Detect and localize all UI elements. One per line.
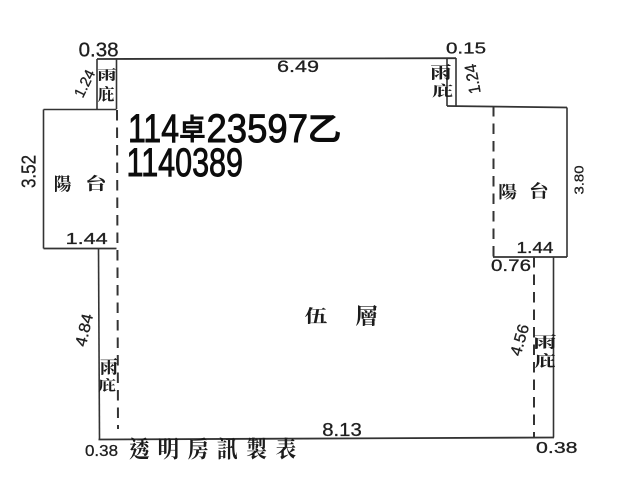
svg-text:8.13: 8.13 [322,420,362,440]
svg-text:0.38: 0.38 [85,443,118,460]
svg-text:4.56: 4.56 [508,322,533,358]
svg-text:4.84: 4.84 [73,312,97,348]
svg-text:3.52: 3.52 [18,155,40,188]
svg-text:1.24: 1.24 [71,67,99,101]
svg-text:0.76: 0.76 [491,256,531,275]
svg-text:1.44: 1.44 [66,231,108,248]
svg-text:1140389: 1140389 [127,141,244,185]
svg-text:0.38: 0.38 [536,440,578,457]
svg-text:3.80: 3.80 [571,166,586,195]
svg-text:0.15: 0.15 [446,41,486,58]
svg-text:1.24: 1.24 [462,63,485,96]
svg-text:1.44: 1.44 [517,240,554,257]
svg-text:6.49: 6.49 [277,57,319,76]
svg-text:0.38: 0.38 [79,40,119,62]
